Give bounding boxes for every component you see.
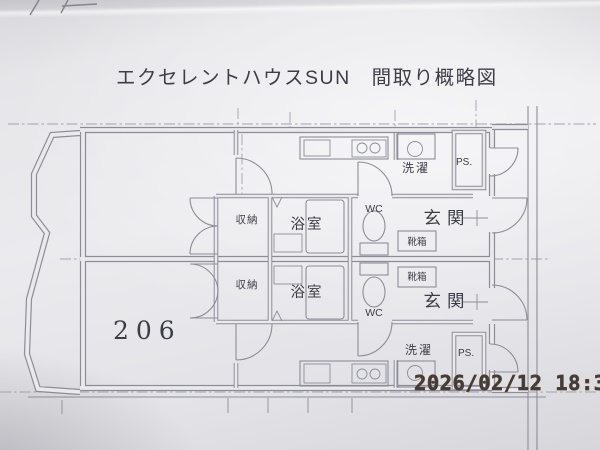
- floor-plan-drawing: エクセレントハウスSUN 間取り概略図 収納 浴室 WC 玄関 靴箱 洗濯 PS…: [0, 0, 600, 450]
- label-laundry-upper: 洗濯: [402, 161, 430, 175]
- label-toilet-upper: WC: [365, 203, 383, 215]
- kitchen-counter-lower: [300, 361, 388, 386]
- label-entrance-upper: 玄関: [424, 208, 471, 228]
- label-bathroom-lower: 浴室: [291, 284, 324, 301]
- washer-pan-upper: [397, 134, 435, 159]
- room-number-stamp: 206: [113, 316, 182, 345]
- document-title: エクセレントハウスSUN 間取り概略図: [116, 67, 498, 89]
- label-bathroom-upper: 浴室: [291, 216, 324, 233]
- floor-plan-photo: エクセレントハウスSUN 間取り概略図 収納 浴室 WC 玄関 靴箱 洗濯 PS…: [0, 0, 600, 450]
- label-shoe-cabinet-upper: 靴箱: [407, 236, 426, 248]
- label-closet-lower: 収納: [236, 278, 259, 291]
- label-pipe-space-lower: PS.: [458, 348, 474, 359]
- label-laundry-lower: 洗濯: [405, 343, 433, 357]
- label-shoe-cabinet-lower: 靴箱: [407, 271, 426, 283]
- label-closet-upper: 収納: [236, 213, 259, 226]
- camera-timestamp: 2026/02/12 18:39: [414, 371, 600, 395]
- toilet-upper: [360, 211, 388, 255]
- toilet-lower: [360, 263, 388, 307]
- label-toilet-lower: WC: [365, 307, 383, 319]
- label-pipe-space-upper: PS.: [456, 157, 472, 168]
- kitchen-counter-upper: [300, 137, 388, 159]
- label-entrance-lower: 玄関: [424, 291, 471, 311]
- adjacent-sheet-marks: [30, 0, 97, 15]
